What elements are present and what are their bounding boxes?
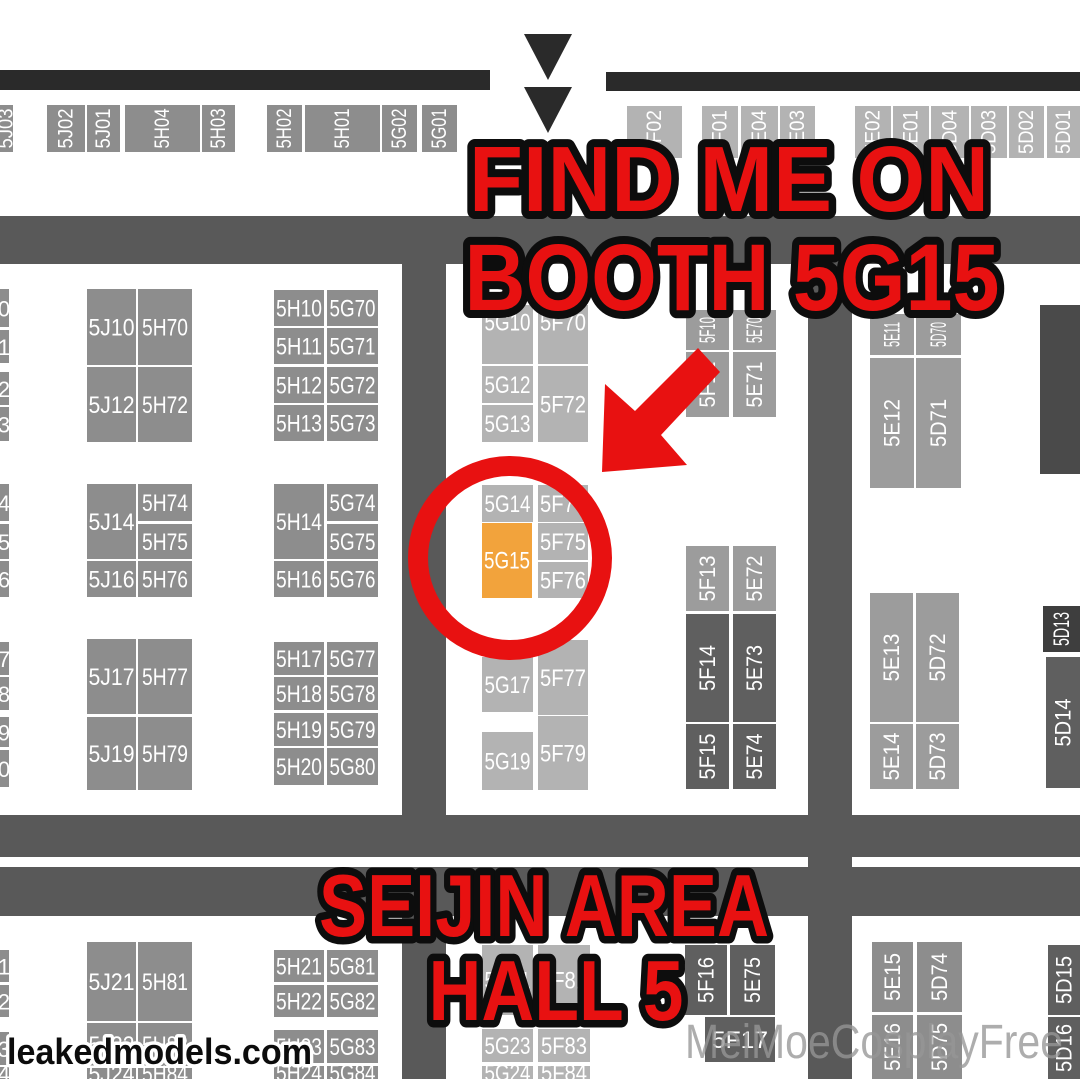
svg-text:5H04: 5H04	[151, 108, 174, 148]
svg-text:5F72: 5F72	[540, 392, 586, 419]
svg-text:5H12: 5H12	[276, 373, 322, 400]
svg-text:5J01: 5J01	[92, 109, 115, 149]
svg-text:5J02: 5J02	[55, 109, 78, 149]
svg-text:5D01: 5D01	[1052, 110, 1075, 154]
svg-text:1: 1	[0, 335, 10, 360]
svg-text:5G83: 5G83	[330, 1034, 376, 1061]
svg-text:5G70: 5G70	[330, 296, 376, 323]
svg-text:5H70: 5H70	[142, 315, 188, 342]
svg-text:5G02: 5G02	[388, 109, 411, 149]
svg-text:5G79: 5G79	[330, 717, 376, 744]
svg-text:5D71: 5D71	[926, 399, 951, 447]
svg-text:5H72: 5H72	[142, 392, 188, 419]
svg-text:5H17: 5H17	[276, 646, 322, 673]
svg-text:5G19: 5G19	[485, 749, 531, 776]
svg-text:5G13: 5G13	[485, 411, 531, 438]
svg-text:5G72: 5G72	[330, 373, 376, 400]
svg-text:6: 6	[0, 568, 10, 593]
svg-text:5H11: 5H11	[276, 334, 322, 361]
svg-text:5H18: 5H18	[276, 681, 322, 708]
svg-text:5G17: 5G17	[485, 672, 531, 699]
svg-text:5E72: 5E72	[742, 556, 767, 602]
svg-text:5J12: 5J12	[89, 392, 135, 419]
svg-text:5F77: 5F77	[540, 665, 586, 692]
svg-text:5J21: 5J21	[89, 969, 135, 996]
svg-text:5G82: 5G82	[330, 989, 376, 1016]
svg-text:5J03: 5J03	[0, 109, 18, 149]
svg-text:5H74: 5H74	[142, 490, 188, 517]
svg-text:5J19: 5J19	[89, 741, 135, 768]
svg-text:1: 1	[0, 955, 10, 980]
svg-text:5J10: 5J10	[89, 315, 135, 342]
svg-text:5H19: 5H19	[276, 717, 322, 744]
svg-text:5G80: 5G80	[330, 754, 376, 781]
svg-text:9: 9	[0, 721, 10, 746]
svg-text:5H22: 5H22	[276, 989, 322, 1016]
svg-text:5G14: 5G14	[485, 491, 531, 518]
svg-text:5E12: 5E12	[880, 399, 905, 447]
svg-text:5G76: 5G76	[330, 567, 376, 594]
svg-text:5G15: 5G15	[484, 548, 530, 575]
svg-text:BOOTH 5G15: BOOTH 5G15	[465, 225, 1000, 331]
svg-text:5G71: 5G71	[330, 334, 376, 361]
svg-text:5F15: 5F15	[695, 734, 720, 780]
svg-text:5G12: 5G12	[485, 372, 531, 399]
svg-text:5G84: 5G84	[330, 1060, 376, 1079]
svg-text:5J17: 5J17	[89, 664, 135, 691]
svg-text:FIND ME ON: FIND ME ON	[469, 127, 989, 231]
svg-text:5G24: 5G24	[485, 1060, 531, 1079]
svg-text:5G75: 5G75	[330, 529, 376, 556]
svg-text:5E14: 5E14	[879, 733, 904, 781]
svg-text:5J16: 5J16	[89, 567, 135, 594]
svg-text:5E73: 5E73	[742, 645, 767, 691]
svg-text:MeiMoeCosplayFree: MeiMoeCosplayFree	[685, 1016, 1063, 1069]
svg-text:5H13: 5H13	[276, 411, 322, 438]
svg-text:5H77: 5H77	[142, 664, 188, 691]
svg-text:5G73: 5G73	[330, 411, 376, 438]
svg-text:5F84: 5F84	[541, 1060, 587, 1079]
svg-text:5D02: 5D02	[1015, 110, 1038, 154]
svg-text:5E75: 5E75	[740, 957, 765, 1003]
svg-text:5G77: 5G77	[330, 646, 376, 673]
svg-text:7: 7	[0, 647, 10, 672]
svg-text:5H76: 5H76	[142, 567, 188, 594]
svg-text:5D15: 5D15	[1052, 956, 1077, 1004]
svg-text:8: 8	[0, 682, 10, 707]
svg-text:5H14: 5H14	[276, 509, 322, 536]
svg-text:5D13: 5D13	[1049, 612, 1074, 646]
svg-text:5H79: 5H79	[142, 741, 188, 768]
svg-text:5D14: 5D14	[1051, 699, 1076, 747]
svg-text:5F76: 5F76	[540, 568, 586, 595]
svg-text:5E15: 5E15	[880, 953, 905, 1001]
svg-text:5G81: 5G81	[330, 954, 376, 981]
svg-text:5J14: 5J14	[89, 509, 135, 536]
svg-text:5D72: 5D72	[925, 634, 950, 682]
svg-text:5: 5	[0, 530, 10, 555]
svg-text:5H01: 5H01	[331, 109, 354, 149]
svg-text:HALL 5: HALL 5	[429, 944, 684, 1039]
svg-text:leakedmodels.com: leakedmodels.com	[7, 1031, 312, 1072]
svg-text:5H20: 5H20	[276, 754, 322, 781]
svg-text:5G78: 5G78	[330, 681, 376, 708]
svg-text:5E74: 5E74	[742, 734, 767, 780]
svg-text:5H16: 5H16	[276, 567, 322, 594]
svg-text:5F13: 5F13	[695, 556, 720, 602]
svg-text:4: 4	[0, 491, 10, 516]
svg-text:3: 3	[0, 413, 10, 438]
svg-text:5E13: 5E13	[879, 634, 904, 682]
svg-text:5F14: 5F14	[695, 645, 720, 691]
svg-text:5H03: 5H03	[207, 109, 230, 149]
svg-text:5F79: 5F79	[540, 741, 586, 768]
svg-text:SEIJIN AREA: SEIJIN AREA	[319, 856, 769, 955]
svg-text:0: 0	[0, 757, 10, 782]
svg-text:5F16: 5F16	[694, 957, 719, 1003]
svg-text:5D74: 5D74	[927, 953, 952, 1001]
svg-text:5E71: 5E71	[742, 362, 767, 408]
svg-text:0: 0	[0, 297, 10, 322]
svg-text:5H81: 5H81	[142, 969, 188, 996]
svg-text:5F75: 5F75	[540, 529, 586, 556]
svg-text:2: 2	[0, 990, 10, 1015]
svg-text:5G01: 5G01	[428, 109, 451, 149]
svg-text:2: 2	[0, 377, 10, 402]
svg-text:5H21: 5H21	[276, 954, 322, 981]
svg-text:5D73: 5D73	[925, 733, 950, 781]
svg-text:5H02: 5H02	[273, 109, 296, 149]
svg-text:5H75: 5H75	[142, 529, 188, 556]
svg-text:5G74: 5G74	[330, 490, 376, 517]
svg-text:5H10: 5H10	[276, 296, 322, 323]
